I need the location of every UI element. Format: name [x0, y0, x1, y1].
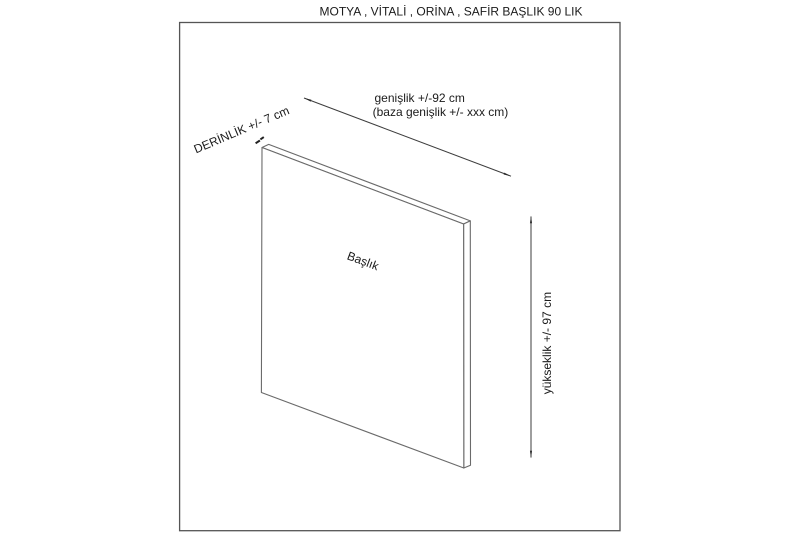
svg-text:yükseklik +/- 97 cm: yükseklik +/- 97 cm: [540, 292, 554, 394]
svg-text:genişlik +/-92 cm: genişlik +/-92 cm: [375, 91, 465, 105]
svg-text:MOTYA , VİTALİ , ORİNA , SAFİR: MOTYA , VİTALİ , ORİNA , SAFİR BAŞLIK 90…: [320, 5, 583, 19]
svg-text:(baza genişlik +/- xxx cm): (baza genişlik +/- xxx cm): [373, 105, 509, 119]
